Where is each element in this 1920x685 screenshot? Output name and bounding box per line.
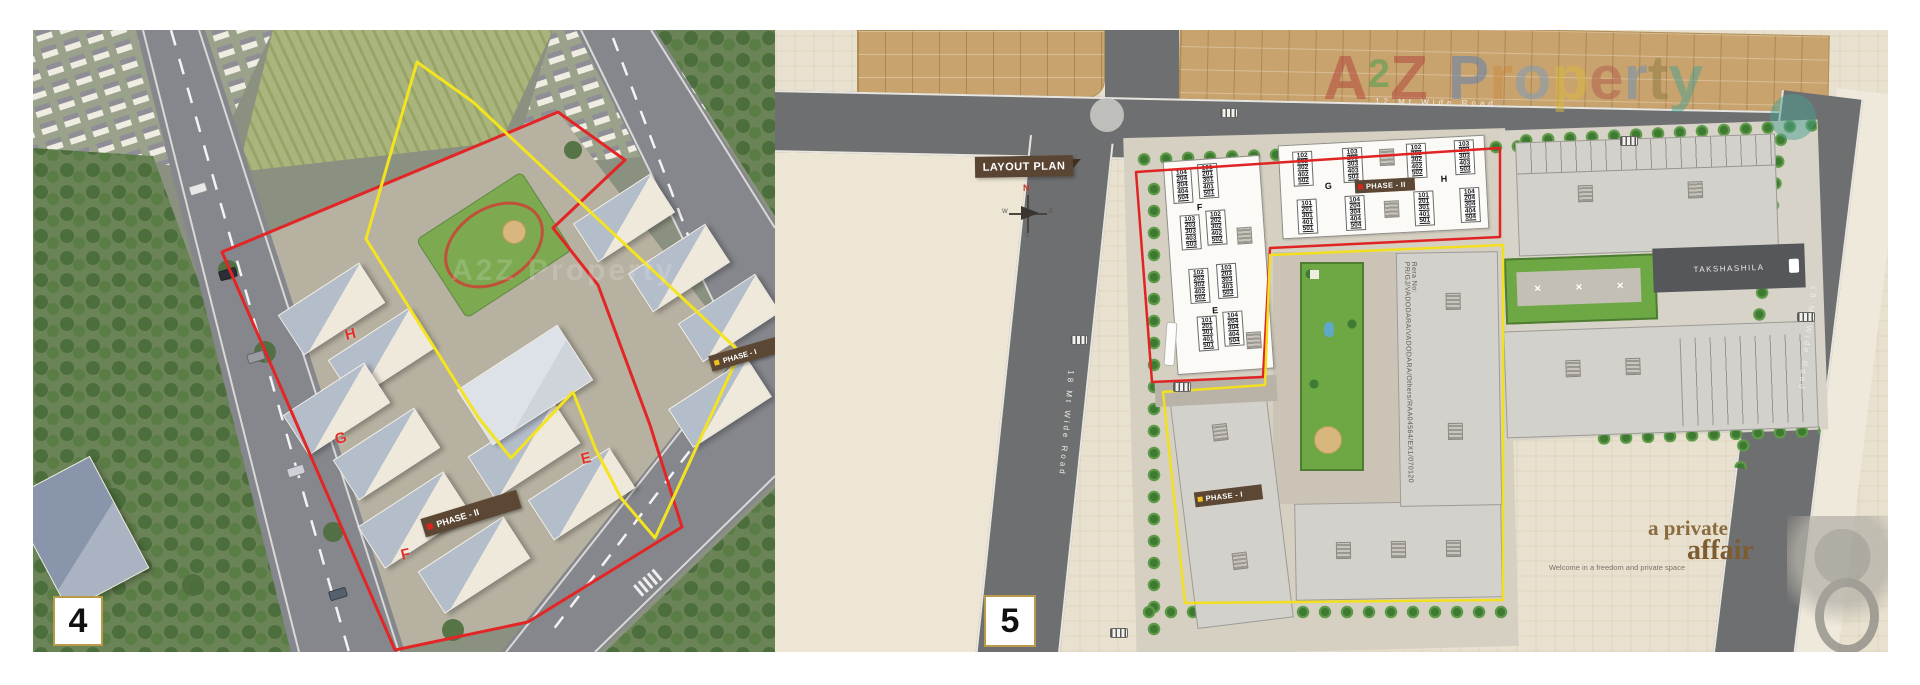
unit-stack: 103 203 303 403 503 — [1216, 263, 1238, 299]
stair-icon — [1625, 358, 1641, 376]
playground-circle — [1314, 426, 1342, 454]
block-label-e: E — [1212, 305, 1219, 315]
phase2-bullet-icon — [426, 522, 433, 529]
unit-stack: 101 201 301 401 501 — [1197, 163, 1219, 199]
gate-marker — [1173, 382, 1191, 392]
unit-stack: 103 203 303 403 503 — [1342, 147, 1364, 183]
phase2-label-plan: PHASE - II — [1355, 177, 1416, 193]
unit-stack: 103 203 303 403 503 — [1454, 139, 1476, 175]
layout-plan-banner: LAYOUT PLAN — [975, 155, 1073, 178]
stone-lion-image — [1787, 516, 1888, 652]
boundary-phase1-yellow — [366, 62, 740, 538]
table-icon: ✕ — [1534, 283, 1542, 294]
stair-icon — [1379, 148, 1395, 166]
gate-marker — [1620, 136, 1638, 146]
compass-arrow-icon — [1021, 206, 1039, 220]
block-label-f: F — [1197, 202, 1203, 212]
city-plot-block — [857, 30, 1105, 98]
stair-icon — [1578, 185, 1594, 203]
intersection-circle — [1090, 98, 1124, 132]
block-label-h: H — [1440, 174, 1447, 184]
phase1-building-south — [1294, 500, 1503, 601]
garden-path: ✕ ✕ ✕ — [1516, 268, 1641, 306]
unit-stack: 104 204 304 404 504 — [1222, 310, 1244, 346]
unit-stack: 101 201 301 401 501 — [1297, 199, 1319, 235]
unit-stack: 103 203 303 403 503 — [1179, 214, 1201, 250]
stair-icon — [1446, 540, 1461, 557]
stair-icon — [1384, 200, 1400, 218]
compass-east-label: E — [1049, 209, 1053, 215]
shop-strip — [1516, 135, 1775, 175]
watermark: A 2 Z P r o p e r t y — [1323, 48, 1703, 110]
page-number-5: 5 — [984, 595, 1036, 647]
stair-icon — [1246, 331, 1262, 349]
lion-knocker-ring — [1815, 578, 1879, 652]
pool — [1324, 322, 1334, 337]
phase1-label-plan: PHASE - I — [1194, 484, 1263, 507]
unit-stack: 102 202 302 402 502 — [1188, 268, 1210, 304]
courtyard-paving — [1273, 252, 1401, 504]
stair-icon — [1445, 293, 1460, 310]
takshashila-entry-road: TAKSHASHILA — [1652, 243, 1805, 292]
phase2-building-gh: 102 202 302 402 502 103 203 303 403 503 … — [1278, 135, 1490, 240]
stair-icon — [1232, 552, 1249, 571]
compass-south-label: S — [1025, 233, 1029, 239]
central-garden — [1300, 262, 1364, 471]
brochure-page: A2Z Property H G F E PHASE - II PHASE - … — [0, 0, 1920, 685]
tagline-sub: Welcome in a freedom and private space — [1537, 563, 1685, 572]
phase1-bullet-icon — [714, 359, 720, 365]
phase2-building-fe: 104 204 304 404 504 101 201 301 401 501 … — [1163, 155, 1275, 375]
unit-stack: 101 201 301 401 501 — [1197, 315, 1219, 351]
table-icon: ✕ — [1575, 281, 1583, 292]
tree-strip — [1147, 180, 1161, 640]
faint-watermark: A2Z Property — [451, 254, 675, 288]
gate-marker — [1070, 335, 1088, 345]
panel-3d-render: A2Z Property H G F E PHASE - II PHASE - … — [33, 30, 775, 652]
existing-building-north — [1515, 133, 1779, 256]
stair-icon — [1391, 541, 1406, 558]
stair-icon — [1448, 423, 1463, 440]
gate-marker — [1110, 628, 1128, 638]
unit-stack: 102 202 302 402 502 — [1205, 209, 1227, 245]
banner-fold — [1073, 159, 1081, 168]
tagline-line2: affair — [1687, 535, 1754, 567]
compass-north-label: N — [1023, 183, 1030, 193]
gate-marker — [1789, 259, 1799, 273]
existing-building-south — [1503, 321, 1819, 439]
unit-stack: 104 204 304 404 504 — [1344, 195, 1366, 231]
unit-stack: 101 201 301 401 501 — [1413, 190, 1435, 226]
page-number-4: 4 — [53, 596, 103, 646]
panel-layout-plan: ✕ ✕ ✕ TAKSHASHILA — [775, 30, 1888, 652]
phase1-building-east: Rera No: PR/GJ/VADODARA/VADODARA/Others/… — [1396, 251, 1502, 507]
garden-strip: ✕ ✕ ✕ — [1504, 253, 1658, 324]
stair-icon — [1212, 423, 1229, 442]
table-icon: ✕ — [1616, 280, 1624, 291]
garden-deck — [1310, 270, 1319, 279]
unit-stack: 102 202 302 402 502 — [1292, 151, 1314, 187]
unit-stack: 102 202 302 402 502 — [1406, 143, 1428, 179]
road-north-stub — [1105, 30, 1179, 100]
takshashila-label: TAKSHASHILA — [1693, 262, 1764, 273]
compass-west-label: W — [1002, 209, 1008, 215]
unit-stack: 104 204 304 404 504 — [1171, 168, 1193, 204]
unit-stack: 104 204 304 404 504 — [1459, 187, 1481, 223]
boundary-phase2-red — [222, 112, 682, 650]
gate-marker — [1797, 312, 1815, 322]
phase2-bullet-icon — [1358, 184, 1363, 189]
watermark-dot-icon — [1770, 94, 1816, 140]
compass: N W E S — [1006, 185, 1052, 239]
block-label-g: G — [1325, 181, 1333, 191]
stair-icon — [1336, 542, 1351, 559]
rera-number: Rera No: PR/GJ/VADODARA/VADODARA/Others/… — [1403, 262, 1421, 500]
stair-icon — [1688, 181, 1704, 199]
gate-marker — [1220, 108, 1238, 118]
phase1-bullet-icon — [1197, 496, 1203, 502]
stair-icon — [1565, 360, 1581, 378]
stair-icon — [1236, 227, 1252, 245]
